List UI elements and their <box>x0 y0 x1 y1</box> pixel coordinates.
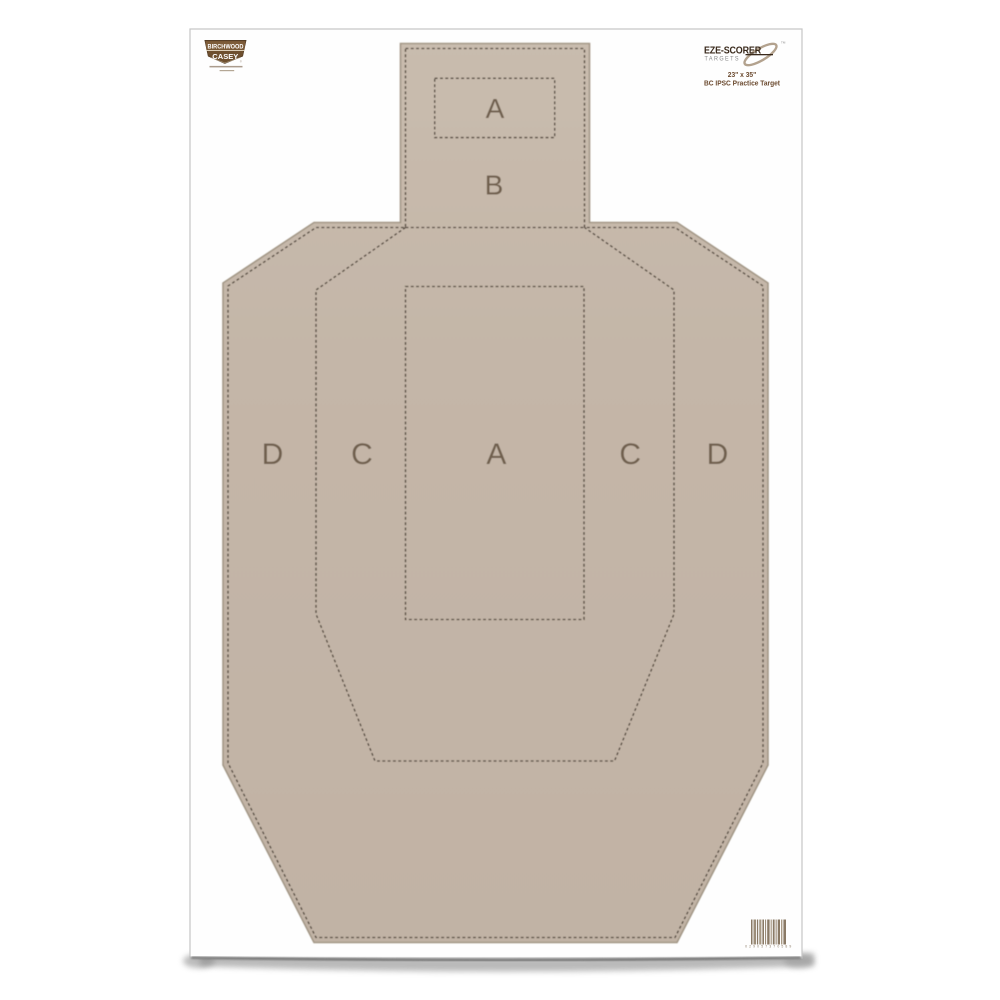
svg-text:D: D <box>262 438 284 471</box>
svg-text:D: D <box>707 438 729 471</box>
svg-text:C: C <box>619 438 641 471</box>
svg-text:0 2 9 0 5 7 3 7 0 5 8 9: 0 2 9 0 5 7 3 7 0 5 8 9 <box>745 945 792 949</box>
svg-text:A: A <box>486 93 505 124</box>
svg-text:TM: TM <box>781 41 786 45</box>
svg-text:CASEY: CASEY <box>212 52 238 61</box>
svg-text:TARGETS: TARGETS <box>705 56 741 62</box>
svg-text:BC IPSC Practice Target: BC IPSC Practice Target <box>704 78 780 87</box>
svg-text:C: C <box>351 438 373 471</box>
svg-text:B: B <box>485 170 504 201</box>
svg-text:A: A <box>486 438 506 471</box>
svg-text:®: ® <box>240 59 242 63</box>
svg-text:BIRCHWOOD: BIRCHWOOD <box>208 43 244 50</box>
